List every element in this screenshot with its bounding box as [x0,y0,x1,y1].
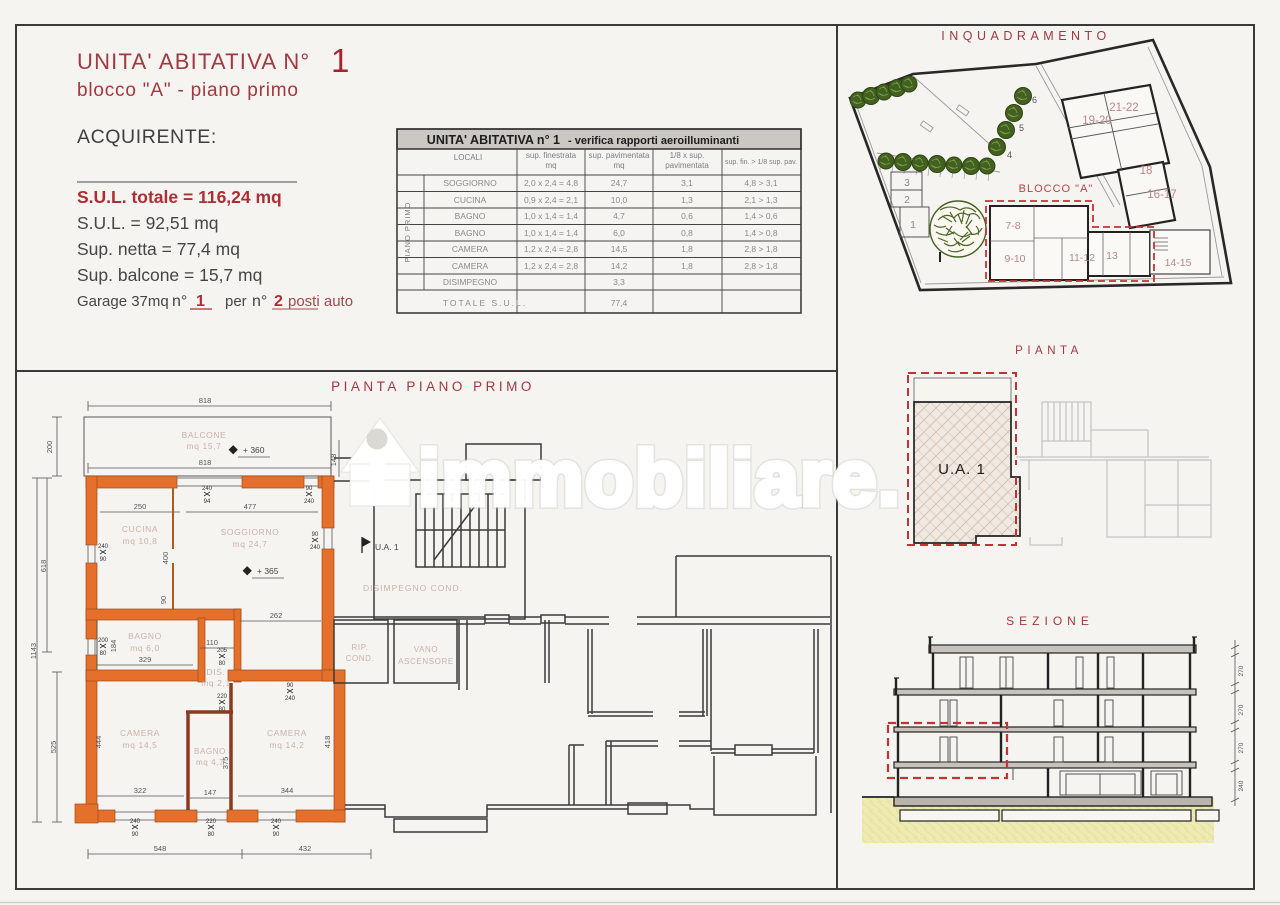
svg-text:LOCALI: LOCALI [454,153,482,162]
svg-text:375: 375 [221,757,230,770]
svg-text:DISIMPEGNO COND.: DISIMPEGNO COND. [363,583,463,593]
svg-text:sup. fin. > 1/8 sup. pav.: sup. fin. > 1/8 sup. pav. [725,159,797,166]
svg-text:1: 1 [910,220,916,231]
svg-text:2,1 > 1,3: 2,1 > 1,3 [744,195,778,205]
svg-text:11-12: 11-12 [1069,252,1095,264]
svg-text:200: 200 [45,441,54,454]
svg-text:444: 444 [94,736,103,749]
svg-text:S.U.L. totale = 116,24 mq: S.U.L. totale = 116,24 mq [77,187,282,207]
svg-text:477: 477 [244,502,257,511]
svg-text:2,8 > 1,8: 2,8 > 1,8 [744,244,778,254]
svg-text:80: 80 [219,707,226,713]
svg-text:2,8 > 1,8: 2,8 > 1,8 [744,261,778,271]
svg-text:80: 80 [100,651,107,657]
svg-text:CAMERA: CAMERA [267,728,307,738]
svg-text:pavimentata: pavimentata [665,161,709,170]
svg-text:200: 200 [98,638,109,644]
svg-text:400: 400 [161,552,170,565]
svg-text:250: 250 [134,502,147,511]
svg-text:270: 270 [1238,742,1245,753]
svg-text:1,0 x 1,4 = 1,4: 1,0 x 1,4 = 1,4 [524,228,578,238]
svg-text:1,0 x 1,4 = 1,4: 1,0 x 1,4 = 1,4 [524,211,578,221]
svg-text:CAMERA: CAMERA [120,728,160,738]
svg-text:BAGNO: BAGNO [194,747,226,756]
svg-text:240: 240 [271,819,282,825]
svg-text:1,2 x 2,4 = 2,8: 1,2 x 2,4 = 2,8 [524,244,578,254]
svg-text:80: 80 [219,661,226,667]
svg-text:sup. finestrata: sup. finestrata [526,151,577,160]
svg-text:6: 6 [1032,95,1037,105]
svg-text:418: 418 [323,736,332,749]
svg-text:Sup. netta = 77,4 mq: Sup. netta = 77,4 mq [77,239,240,259]
svg-text:18: 18 [1140,165,1153,177]
svg-text:4: 4 [1007,150,1012,160]
svg-text:322: 322 [134,786,147,795]
svg-text:344: 344 [281,786,294,795]
svg-text:24,7: 24,7 [611,178,628,188]
svg-text:147: 147 [204,788,217,797]
svg-text:220: 220 [206,819,217,825]
svg-text:sup. pavimentata: sup. pavimentata [589,151,650,160]
svg-text:Sup. balcone = 15,7 mq: Sup. balcone = 15,7 mq [77,265,262,285]
svg-text:90: 90 [312,532,319,538]
svg-text:RIP.: RIP. [352,643,369,652]
svg-text:240: 240 [202,486,213,492]
svg-text:1: 1 [196,293,205,310]
svg-text:BAGNO: BAGNO [455,211,486,221]
svg-text:- verifica rapporti aeroillumi: - verifica rapporti aeroilluminanti [568,135,739,147]
svg-text:mq 14,2: mq 14,2 [270,740,305,750]
svg-text:1,3: 1,3 [681,195,693,205]
svg-text:mq 4,7: mq 4,7 [196,758,224,767]
svg-text:posti auto: posti auto [288,293,353,310]
svg-text:DIS.: DIS. [207,667,226,677]
svg-text:BAGNO: BAGNO [455,228,486,238]
svg-text:19-20: 19-20 [1082,115,1111,127]
svg-text:U.A. 1: U.A. 1 [375,542,399,552]
svg-text:CAMERA: CAMERA [452,261,489,271]
svg-text:90: 90 [159,596,168,604]
svg-text:818: 818 [199,458,212,467]
svg-text:270: 270 [1238,704,1245,715]
svg-text:240: 240 [98,544,109,550]
svg-text:548: 548 [154,844,167,853]
svg-text:SEZIONE: SEZIONE [1006,614,1094,628]
svg-text:94: 94 [204,499,211,505]
svg-text:5: 5 [1019,123,1024,133]
svg-text:818: 818 [199,396,212,405]
svg-text:TOTALE S.U.L.: TOTALE S.U.L. [443,298,527,308]
svg-text:1/8 x sup.: 1/8 x sup. [670,151,705,160]
svg-text:148: 148 [329,454,338,467]
svg-text:0,8: 0,8 [681,228,693,238]
svg-text:COND.: COND. [346,654,375,663]
svg-text:13: 13 [1106,250,1118,262]
svg-text:432: 432 [299,844,312,853]
svg-text:80: 80 [208,832,215,838]
svg-text:77,4: 77,4 [611,298,628,308]
svg-text:mq 2,1: mq 2,1 [201,678,231,688]
svg-text:240: 240 [310,545,321,551]
svg-text:1,8: 1,8 [681,244,693,254]
svg-text:9-10: 9-10 [1004,253,1025,265]
svg-text:16-17: 16-17 [1147,189,1176,201]
svg-text:2: 2 [904,195,910,206]
svg-text:PIANTA: PIANTA [1015,345,1083,357]
svg-text:CUCINA: CUCINA [454,195,487,205]
svg-text:90: 90 [306,486,313,492]
svg-text:110: 110 [206,638,218,647]
svg-text:21-22: 21-22 [1109,102,1138,114]
svg-text:10,0: 10,0 [611,195,628,205]
svg-text:ACQUIRENTE:: ACQUIRENTE: [77,126,217,148]
svg-text:2,0 x 2,4 = 4,8: 2,0 x 2,4 = 4,8 [524,178,578,188]
svg-text:INQUADRAMENTO: INQUADRAMENTO [941,29,1110,43]
svg-text:262: 262 [270,611,283,620]
svg-text:1,8: 1,8 [681,261,693,271]
svg-text:1,4 > 0,6: 1,4 > 0,6 [744,211,778,221]
svg-text:14-15: 14-15 [1165,257,1192,269]
svg-text:1,4 > 0,8: 1,4 > 0,8 [744,228,778,238]
svg-text:1: 1 [331,42,349,79]
svg-text:blocco "A" - piano primo: blocco "A" - piano primo [77,80,299,101]
svg-text:BALCONE: BALCONE [182,430,227,440]
svg-text:DISIMPEGNO: DISIMPEGNO [443,277,498,287]
svg-text:618: 618 [39,560,48,573]
svg-text:mq 14,5: mq 14,5 [123,740,158,750]
svg-text:PIANO PRIMO: PIANO PRIMO [403,201,412,262]
svg-text:CUCINA: CUCINA [122,524,158,534]
svg-text:mq 15,7: mq 15,7 [187,441,222,451]
svg-text:per: per [225,293,247,310]
svg-text:mq: mq [613,161,624,170]
svg-text:immobiliare.: immobiliare. [418,433,901,522]
svg-text:mq 10,8: mq 10,8 [123,536,158,546]
svg-text:+ 360: + 360 [243,445,265,455]
svg-text:SOGGIORNO: SOGGIORNO [221,527,280,537]
svg-text:240: 240 [1238,780,1245,791]
svg-text:90: 90 [287,683,294,689]
svg-text:14,2: 14,2 [611,261,628,271]
svg-text:U.A. 1: U.A. 1 [938,461,986,478]
svg-text:n°: n° [252,293,267,310]
svg-text:525: 525 [49,741,58,754]
svg-text:270: 270 [1238,665,1245,676]
svg-text:ASCENSORE: ASCENSORE [398,657,454,666]
svg-text:Garage 37mq: Garage 37mq [77,293,169,310]
svg-text:90: 90 [100,557,107,563]
svg-text:PIANTA PIANO PRIMO: PIANTA PIANO PRIMO [331,379,535,394]
svg-text:0,6: 0,6 [681,211,693,221]
svg-text:S.U.L. = 92,51 mq: S.U.L. = 92,51 mq [77,213,219,233]
svg-text:220: 220 [217,694,228,700]
svg-text:4,7: 4,7 [613,211,625,221]
svg-text:240: 240 [304,499,315,505]
svg-text:VANO: VANO [414,645,438,654]
svg-text:BLOCCO "A": BLOCCO "A" [1019,183,1094,195]
svg-text:3,3: 3,3 [613,277,625,287]
svg-text:UNITA' ABITATIVA N°: UNITA' ABITATIVA N° [77,49,310,74]
svg-text:240: 240 [130,819,141,825]
svg-text:1143: 1143 [29,643,38,659]
svg-text:205: 205 [217,648,228,654]
svg-text:3,1: 3,1 [681,178,693,188]
svg-text:2: 2 [274,293,283,310]
svg-text:90: 90 [273,832,280,838]
svg-text:CAMERA: CAMERA [452,244,489,254]
svg-text:n°: n° [172,293,187,310]
svg-text:6,0: 6,0 [613,228,625,238]
svg-text:+ 365: + 365 [257,566,279,576]
svg-text:0,9 x 2,4 = 2,1: 0,9 x 2,4 = 2,1 [524,195,578,205]
svg-text:3: 3 [904,178,910,189]
svg-text:7-8: 7-8 [1005,220,1020,232]
svg-text:UNITA' ABITATIVA n° 1: UNITA' ABITATIVA n° 1 [427,133,560,147]
svg-text:BAGNO: BAGNO [128,631,162,641]
svg-text:4,8 > 3,1: 4,8 > 3,1 [744,178,778,188]
svg-text:mq: mq [545,161,556,170]
svg-text:329: 329 [139,655,152,664]
svg-text:mq 24,7: mq 24,7 [233,539,268,549]
svg-text:SOGGIORNO: SOGGIORNO [443,178,497,188]
svg-text:1,2 x 2,4 = 2,8: 1,2 x 2,4 = 2,8 [524,261,578,271]
svg-text:184: 184 [109,640,118,653]
svg-text:240: 240 [285,696,296,702]
svg-text:14,5: 14,5 [611,244,628,254]
svg-text:mq 6,0: mq 6,0 [130,643,160,653]
svg-text:90: 90 [132,832,139,838]
